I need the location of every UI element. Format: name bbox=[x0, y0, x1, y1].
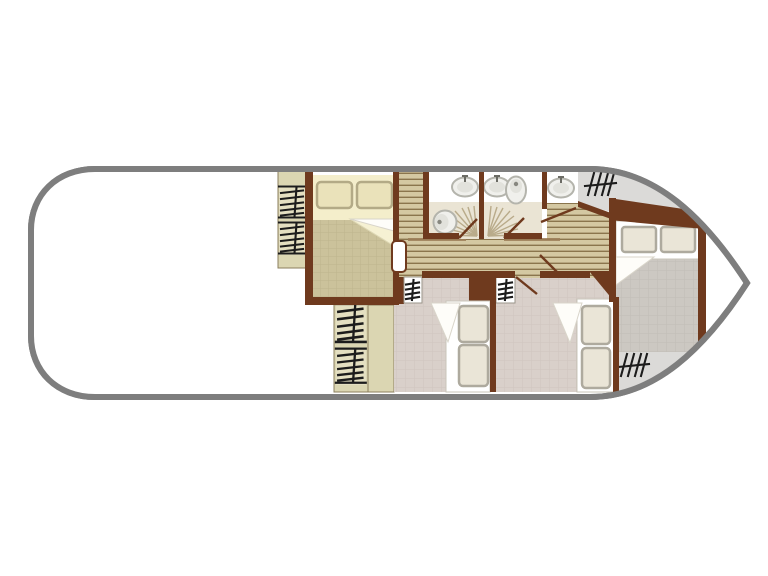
pillow bbox=[459, 306, 488, 342]
bathroom-left bbox=[429, 169, 479, 239]
bathroom-right bbox=[484, 169, 542, 239]
cabin-door-leaf bbox=[392, 241, 406, 272]
pillow bbox=[661, 227, 695, 252]
boat-floor-plan bbox=[0, 0, 768, 576]
floor-plan-canvas bbox=[0, 0, 768, 576]
pillow bbox=[622, 227, 656, 252]
pillow bbox=[582, 348, 610, 388]
pillow bbox=[582, 306, 610, 344]
aft-deck bbox=[31, 169, 278, 397]
pillow bbox=[459, 345, 488, 386]
side-panel-bottom-mid bbox=[334, 298, 368, 392]
pillow bbox=[317, 182, 352, 208]
side-panel-top-aft bbox=[278, 169, 307, 268]
pillow bbox=[357, 182, 392, 208]
lower-right-cabin bbox=[496, 277, 615, 392]
wardrobe bbox=[469, 277, 491, 303]
cabin-side-panel bbox=[368, 305, 394, 392]
bow-cabin bbox=[616, 221, 702, 352]
double-bed-cabin bbox=[312, 175, 394, 299]
